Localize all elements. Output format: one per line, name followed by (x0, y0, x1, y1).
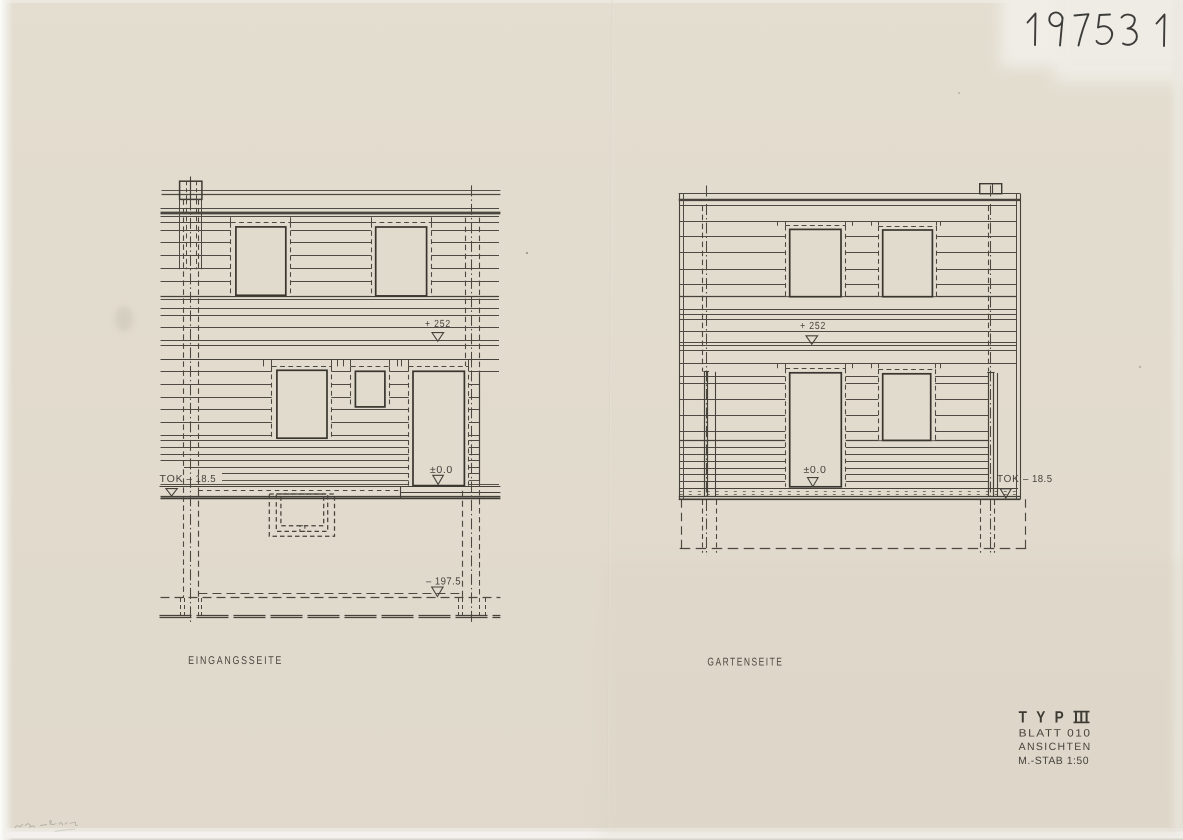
svg-text:EINGANGSSEITE: EINGANGSSEITE (188, 655, 283, 667)
svg-text:M.-STAB 1:50: M.-STAB 1:50 (1018, 755, 1089, 767)
svg-text:TOK: TOK (997, 474, 1020, 485)
svg-text:– 18.5: – 18.5 (187, 474, 217, 485)
svg-text:BLATT 010: BLATT 010 (1019, 727, 1092, 739)
svg-text:GARTENSEITE: GARTENSEITE (707, 657, 783, 669)
svg-text:TOK: TOK (160, 474, 184, 485)
svg-text:±0.0: ±0.0 (804, 465, 827, 476)
svg-text:±0.0: ±0.0 (430, 465, 453, 476)
svg-text:+ 252: + 252 (425, 319, 451, 330)
svg-text:– 18.5: – 18.5 (1023, 474, 1053, 485)
svg-text:ANSICHTEN: ANSICHTEN (1019, 741, 1092, 753)
svg-text:– 197.5: – 197.5 (426, 577, 461, 588)
svg-text:T Y P: T Y P (1019, 709, 1067, 727)
svg-text:+ 252: + 252 (800, 321, 826, 332)
